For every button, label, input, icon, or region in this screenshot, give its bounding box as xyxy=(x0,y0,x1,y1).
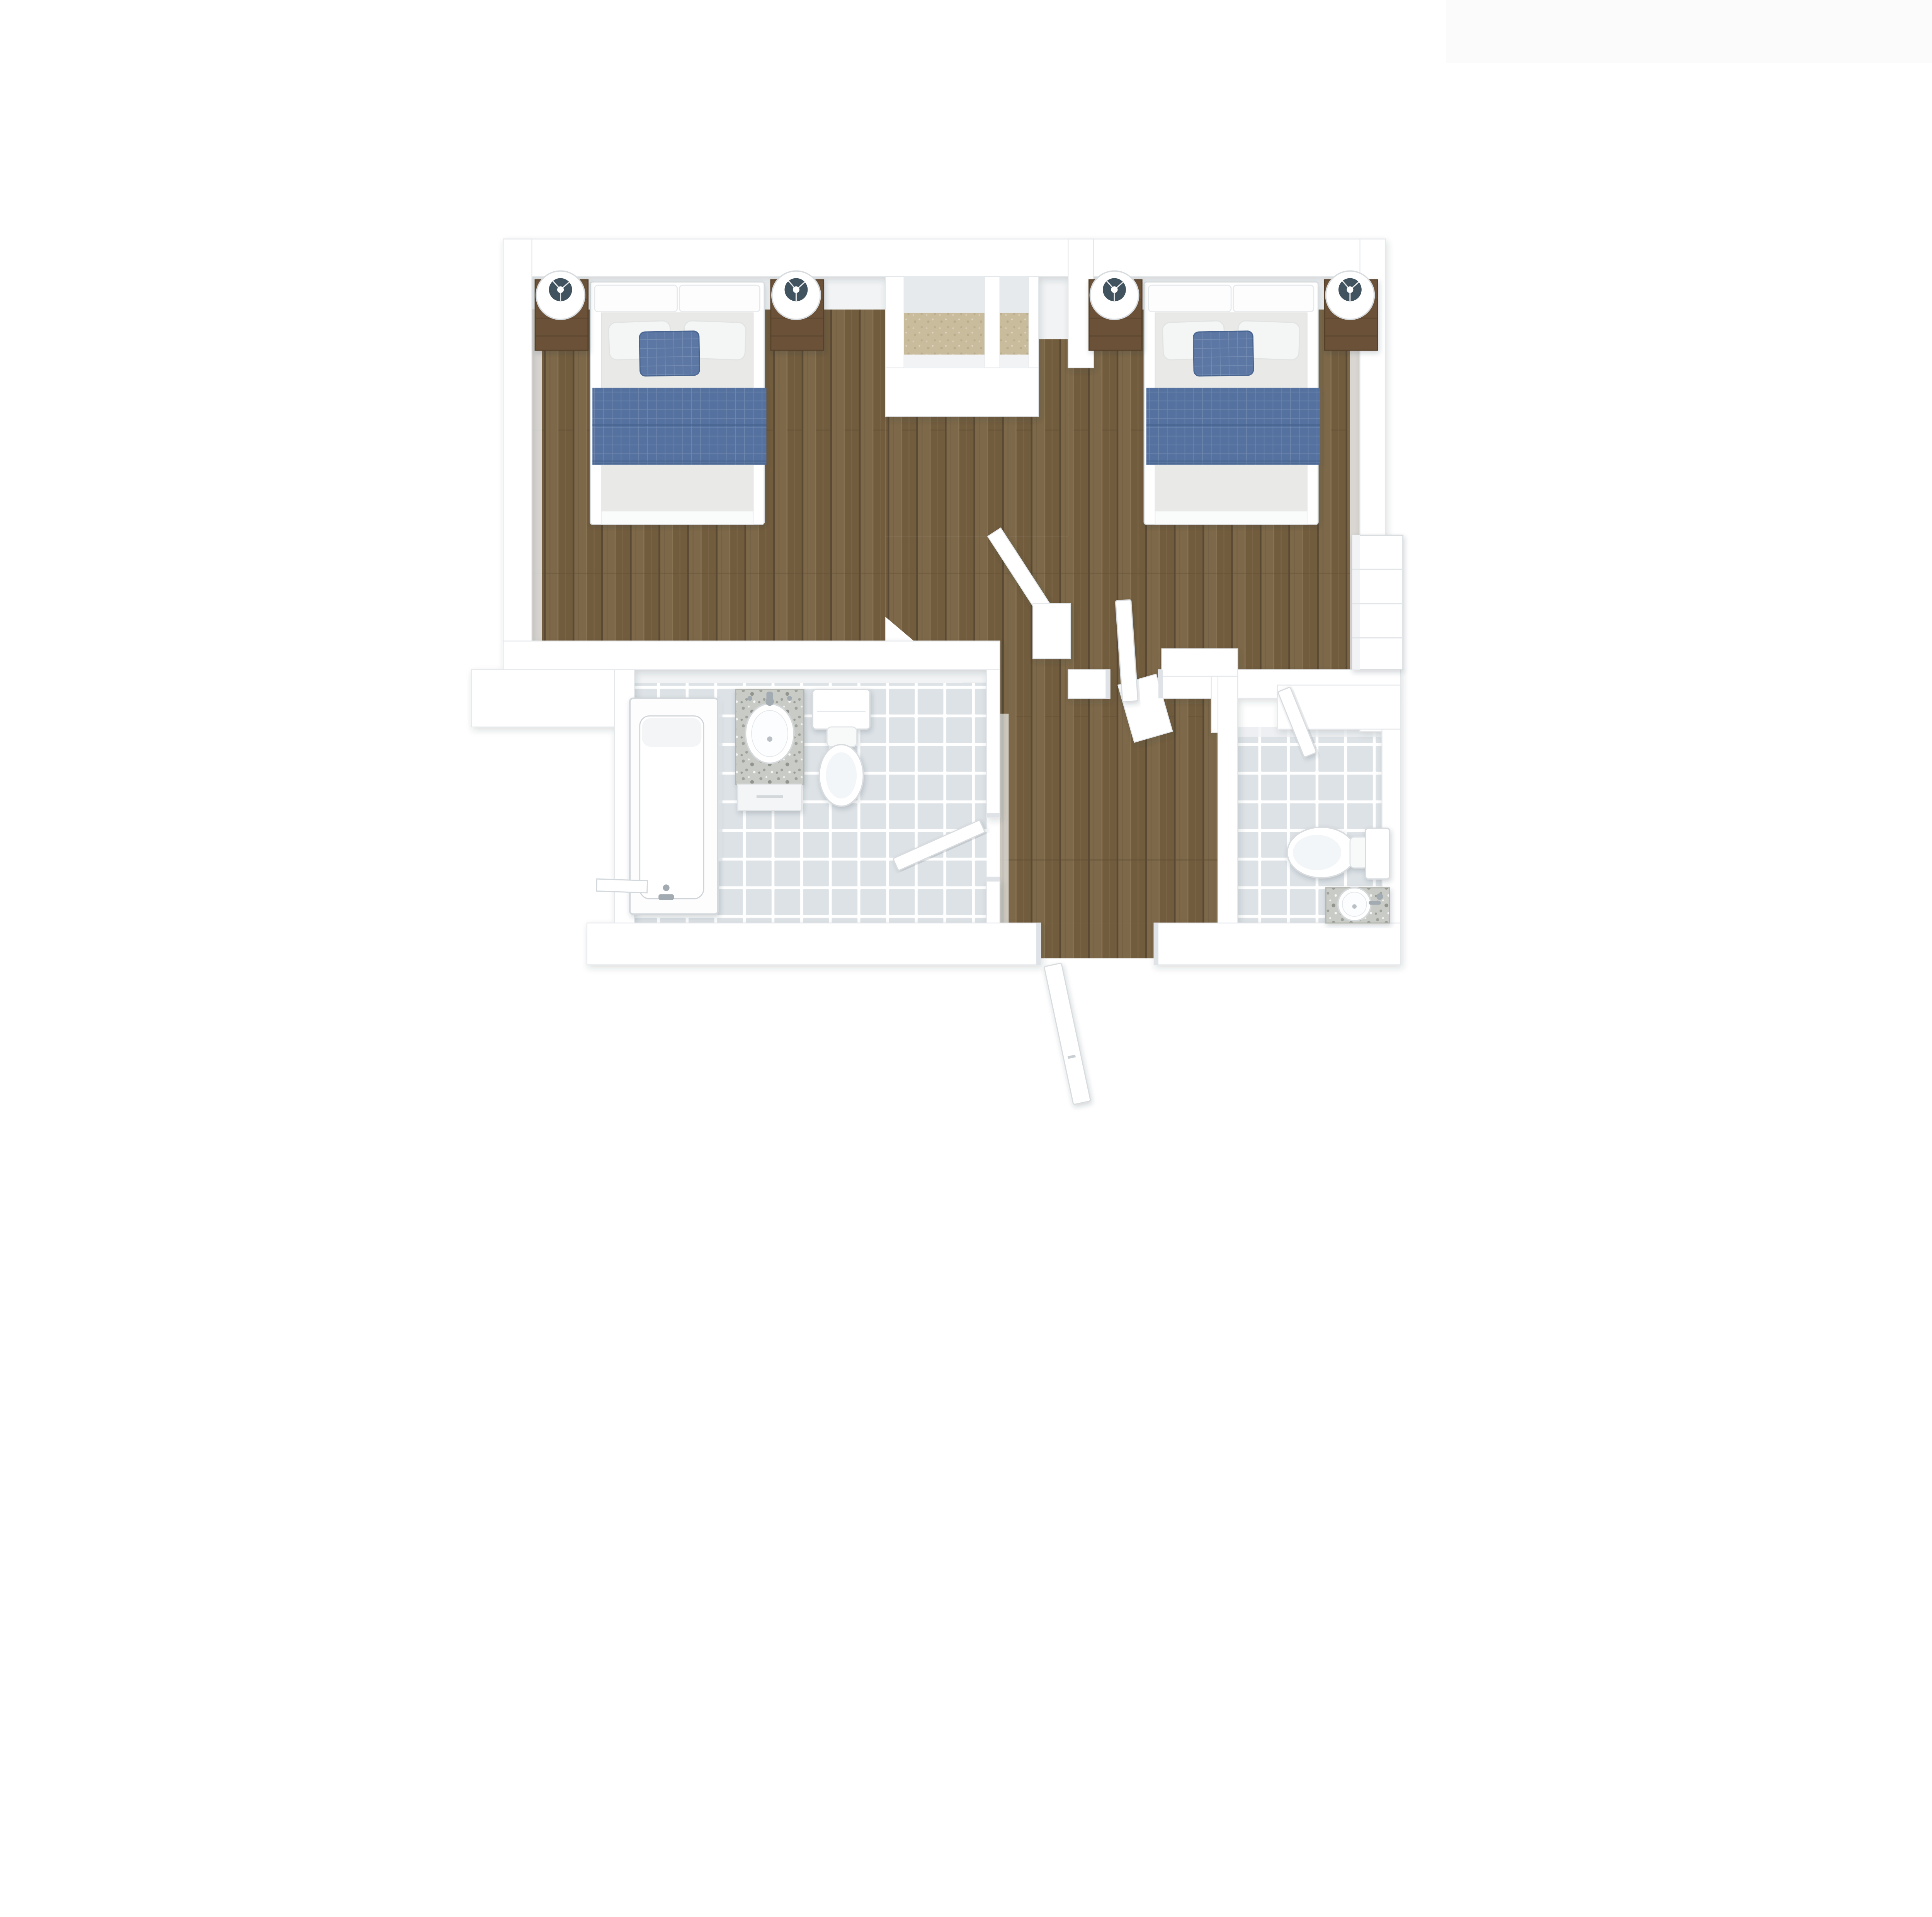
bathroom-left-doorway-jamb-top xyxy=(986,813,1000,817)
bed-right xyxy=(1144,282,1320,524)
shower-glass-panel xyxy=(718,698,722,861)
vanity-right xyxy=(1326,888,1389,923)
sink-handle-left xyxy=(747,696,752,701)
tub-faucet xyxy=(658,894,674,900)
hallway-floor-below-closets xyxy=(885,413,1068,536)
lamp-finial xyxy=(1347,286,1353,293)
vanity-left xyxy=(736,690,804,810)
entry-doorway-jamb-left xyxy=(1036,923,1041,965)
toilet-right xyxy=(1287,827,1389,879)
channel-wall-face xyxy=(1038,276,1068,339)
headboard-right-panel xyxy=(679,285,760,312)
tub-drain xyxy=(663,884,670,891)
sink-faucet-spout xyxy=(766,692,773,702)
bedroom-left-bottom-wall xyxy=(503,641,1000,670)
bedroom-left-west-wall-face xyxy=(532,310,542,644)
closet-left-carpet xyxy=(904,313,985,354)
bedroom-right-bottom-wall-a xyxy=(1068,670,1110,698)
shower-screen xyxy=(597,879,648,893)
accent-pillow xyxy=(1193,331,1253,376)
blanket xyxy=(1146,388,1320,465)
exterior-bottom-wall-right xyxy=(1154,923,1401,965)
headboard-left-panel xyxy=(595,285,677,312)
bathroom-left-top-wall-face xyxy=(634,670,986,683)
lamp-finial xyxy=(1111,286,1117,293)
mattress-foot xyxy=(601,465,753,511)
bedroom-right-doorway-jamb-left xyxy=(1105,670,1110,698)
bedroom-right-doorway-jamb-right xyxy=(1158,670,1163,698)
hallway-door-frame-post xyxy=(1033,604,1070,659)
closets xyxy=(904,276,1029,368)
blanket-hem xyxy=(1146,460,1320,465)
entry-doorway-jamb-right xyxy=(1154,923,1158,965)
sink-bowl xyxy=(752,710,788,757)
corridor-west-wall-face xyxy=(1000,714,1009,923)
exterior-bottom-wall-left xyxy=(587,923,1041,965)
blanket-hem xyxy=(592,460,766,465)
bathroom-left-doorway-jamb-bottom xyxy=(986,877,1000,881)
sink-handle-right xyxy=(787,696,792,701)
lamp-finial xyxy=(793,286,799,293)
headboard-left-panel xyxy=(1148,285,1231,312)
blanket-fold-line xyxy=(1146,424,1320,426)
closet-right-back-wall xyxy=(1000,276,1029,313)
corridor-corner-wall-h xyxy=(1162,649,1238,676)
bed-foot-rail xyxy=(1155,511,1307,524)
blanket xyxy=(592,388,766,465)
bathroom-left-east-wall-lower xyxy=(986,881,1000,923)
entry-doorway-floor xyxy=(1041,923,1154,958)
accent-pillow-texture xyxy=(1193,331,1253,376)
toilet-seat-hinge xyxy=(827,727,857,747)
accent-pillow xyxy=(639,331,700,376)
toilet-tank xyxy=(813,690,870,729)
closet-right-front-lip xyxy=(1000,355,1029,368)
exterior-top-wall xyxy=(503,239,1385,276)
exterior-left-wall xyxy=(503,239,532,669)
table-lamp-right-1 xyxy=(772,271,820,319)
dresser xyxy=(1352,535,1403,670)
toilet-tank xyxy=(1366,828,1390,879)
lamp-finial xyxy=(557,286,564,293)
closet-right-carpet xyxy=(1000,313,1029,354)
sink-faucet xyxy=(1376,893,1383,900)
closet-bottom-wall xyxy=(885,368,1038,416)
sink-drain xyxy=(767,736,772,742)
faint-top-right-band xyxy=(1446,0,1932,63)
toilet-bowl-inner xyxy=(826,752,857,798)
accent-pillow-texture xyxy=(639,331,700,376)
table-lamp-left-2 xyxy=(1090,271,1138,319)
sink-faucet-spout xyxy=(1369,901,1381,905)
blanket-fold-line xyxy=(592,424,766,426)
bed-foot-rail xyxy=(601,511,753,524)
closet-left-back-wall xyxy=(904,276,985,313)
floor-plan xyxy=(0,0,1932,1366)
bathroom-left-east-wall-upper xyxy=(986,670,1000,817)
page xyxy=(0,0,1932,1366)
closet-left-front-lip xyxy=(904,355,985,368)
dresser-side-shade xyxy=(1352,535,1360,670)
bathtub-headrest-shade xyxy=(642,718,701,747)
exterior-jut-wall xyxy=(471,670,614,727)
sink-drain xyxy=(1352,904,1357,909)
toilet-bowl-inner xyxy=(1293,835,1341,870)
table-lamp-right-2 xyxy=(1326,271,1374,319)
vanity-drawer-handle xyxy=(757,795,783,798)
mattress-foot xyxy=(1155,465,1307,511)
bathroom-right-west-wall xyxy=(1218,676,1238,923)
table-lamp-left-1 xyxy=(536,271,585,319)
hallway-channel-floor xyxy=(1038,339,1068,416)
bed-left xyxy=(590,282,767,524)
headboard-right-panel xyxy=(1233,285,1314,312)
